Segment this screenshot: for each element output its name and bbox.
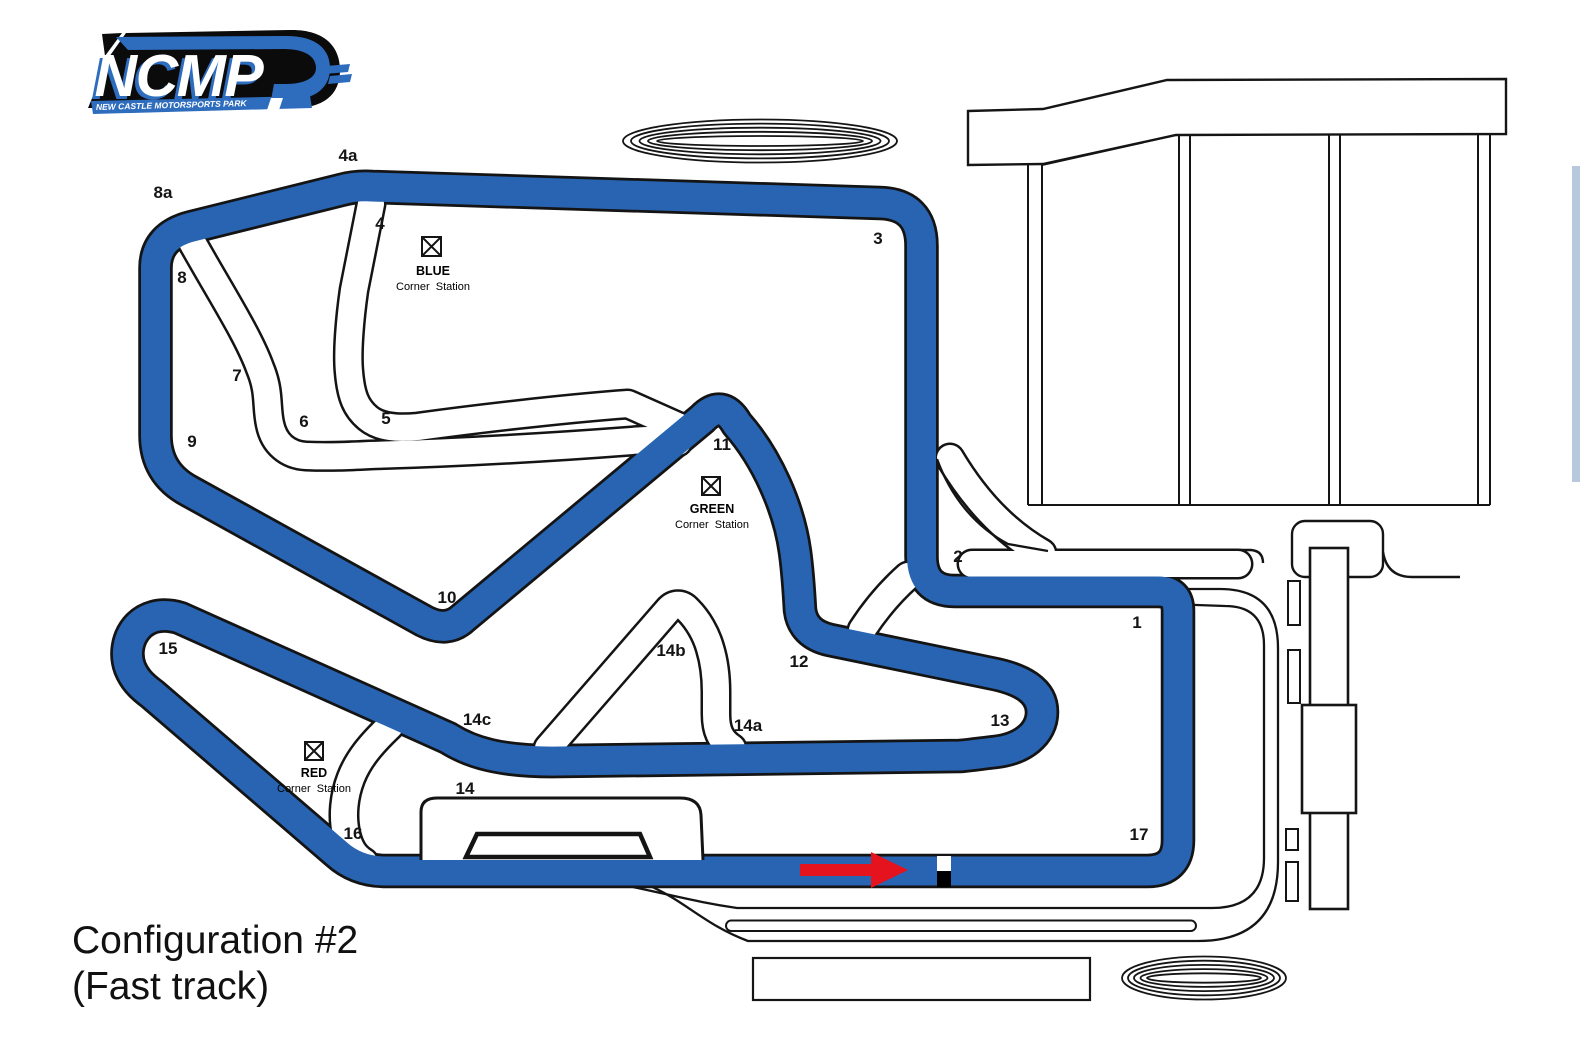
svg-text:BLUE: BLUE (416, 264, 450, 278)
svg-text:14c: 14c (463, 710, 491, 729)
svg-text:14b: 14b (656, 641, 685, 660)
svg-text:Corner Station: Corner Station (675, 519, 749, 531)
svg-text:13: 13 (991, 711, 1010, 730)
svg-text:Corner Station: Corner Station (277, 783, 351, 795)
svg-text:4a: 4a (339, 146, 358, 165)
svg-text:15: 15 (159, 639, 178, 658)
svg-text:3: 3 (873, 229, 882, 248)
svg-text:Corner Station: Corner Station (396, 281, 470, 293)
svg-text:8a: 8a (154, 183, 173, 202)
svg-text:2: 2 (953, 547, 962, 566)
svg-text:14: 14 (456, 779, 475, 798)
svg-text:GREEN: GREEN (690, 502, 734, 516)
svg-text:6: 6 (299, 412, 308, 431)
svg-text:RED: RED (301, 766, 327, 780)
svg-text:8: 8 (177, 268, 186, 287)
svg-text:10: 10 (438, 588, 457, 607)
svg-text:17: 17 (1130, 825, 1149, 844)
svg-text:11: 11 (713, 435, 731, 454)
svg-text:4: 4 (375, 214, 385, 233)
svg-text:Configuration #2: Configuration #2 (72, 919, 358, 962)
svg-text:12: 12 (790, 652, 809, 671)
svg-text:16: 16 (344, 824, 363, 843)
svg-text:14a: 14a (734, 716, 763, 735)
svg-text:(Fast track): (Fast track) (72, 965, 269, 1008)
svg-text:1: 1 (1132, 613, 1141, 632)
svg-text:7: 7 (232, 366, 241, 385)
svg-text:9: 9 (187, 432, 196, 451)
svg-text:5: 5 (381, 409, 390, 428)
